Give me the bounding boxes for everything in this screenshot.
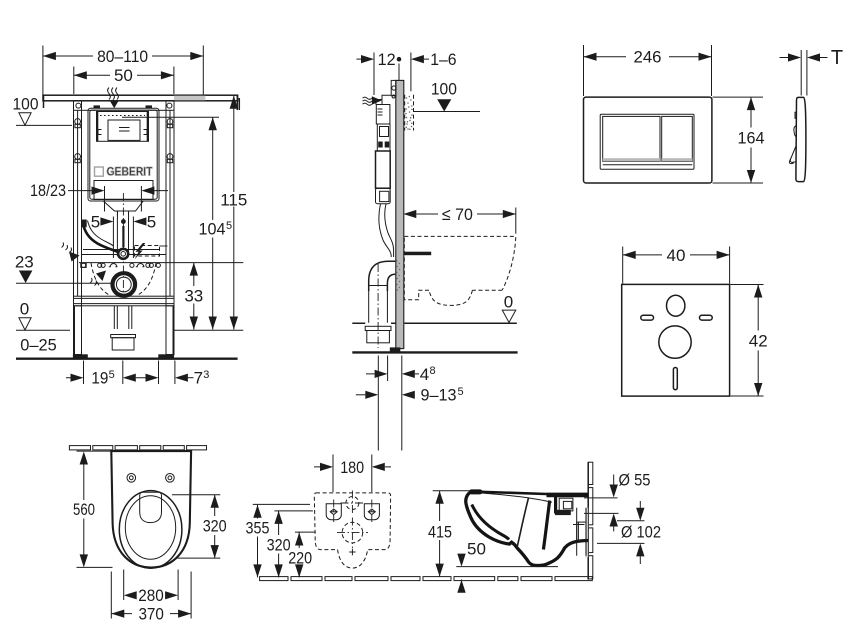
svg-text:0: 0 bbox=[504, 293, 513, 312]
svg-text:5: 5 bbox=[91, 212, 100, 231]
svg-text:280: 280 bbox=[138, 586, 164, 605]
svg-text:320: 320 bbox=[267, 535, 291, 554]
svg-text:12: 12 bbox=[378, 50, 396, 69]
svg-text:50: 50 bbox=[114, 66, 133, 85]
svg-text:42: 42 bbox=[749, 332, 768, 351]
svg-text:0–25: 0–25 bbox=[20, 335, 57, 354]
svg-text:220: 220 bbox=[288, 548, 312, 567]
svg-text:23: 23 bbox=[15, 252, 34, 271]
svg-text:246: 246 bbox=[634, 48, 662, 67]
svg-text:9–13: 9–13 bbox=[421, 386, 457, 405]
svg-text:5: 5 bbox=[226, 220, 232, 232]
svg-text:320: 320 bbox=[203, 516, 227, 535]
svg-text:Ø 55: Ø 55 bbox=[619, 470, 651, 489]
svg-text:50: 50 bbox=[467, 539, 486, 558]
svg-text:164: 164 bbox=[738, 129, 765, 148]
svg-text:18/23: 18/23 bbox=[30, 181, 66, 200]
svg-text:5: 5 bbox=[147, 212, 156, 231]
svg-text:T: T bbox=[831, 47, 843, 69]
svg-text:Ø 102: Ø 102 bbox=[621, 522, 661, 541]
svg-text:7: 7 bbox=[194, 369, 203, 388]
svg-text:560: 560 bbox=[73, 500, 95, 519]
svg-text:100: 100 bbox=[13, 95, 39, 114]
svg-text:80–110: 80–110 bbox=[97, 47, 148, 66]
svg-text:3: 3 bbox=[203, 369, 209, 381]
svg-text:GEBERIT: GEBERIT bbox=[107, 166, 153, 178]
svg-text:4: 4 bbox=[420, 365, 429, 384]
svg-text:≤ 70: ≤ 70 bbox=[442, 205, 473, 224]
svg-text:33: 33 bbox=[184, 286, 203, 305]
svg-text:115: 115 bbox=[220, 190, 247, 209]
svg-text:5: 5 bbox=[109, 369, 115, 381]
svg-text:19: 19 bbox=[91, 369, 108, 388]
svg-text:415: 415 bbox=[428, 522, 452, 541]
svg-text:8: 8 bbox=[430, 365, 436, 377]
svg-text:180: 180 bbox=[340, 458, 364, 477]
svg-text:370: 370 bbox=[138, 605, 164, 624]
svg-text:40: 40 bbox=[667, 246, 686, 265]
svg-text:5: 5 bbox=[458, 386, 464, 398]
svg-text:100: 100 bbox=[431, 80, 457, 99]
svg-text:1–6: 1–6 bbox=[430, 50, 456, 69]
svg-text:0: 0 bbox=[20, 300, 29, 319]
svg-text:104: 104 bbox=[199, 220, 226, 239]
